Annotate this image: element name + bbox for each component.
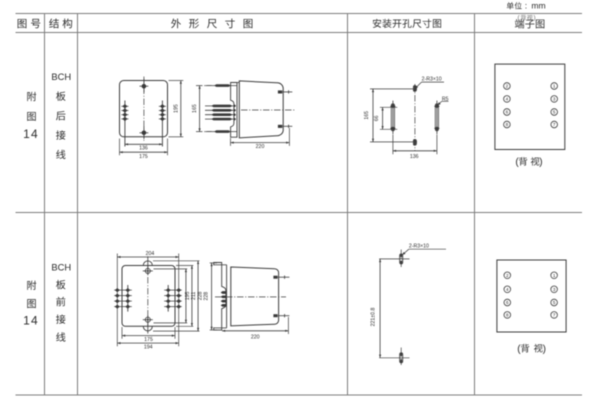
svg-text:): ) [533,14,535,21]
svg-text:5: 5 [553,300,556,305]
svg-text:3: 3 [553,97,556,102]
svg-text:2-R3×10: 2-R3×10 [409,244,429,250]
svg-text:2: 2 [506,84,509,89]
svg-text:66: 66 [374,115,380,121]
svg-text:BCH: BCH [51,261,71,272]
svg-text:136: 136 [410,154,419,160]
svg-text:195: 195 [174,104,180,113]
svg-text:4: 4 [506,287,509,292]
svg-text:mm: mm [531,0,545,10]
svg-text:7: 7 [553,122,556,127]
svg-text:228: 228 [197,291,203,300]
svg-text:228: 228 [204,292,210,301]
svg-text:2-R3×10: 2-R3×10 [422,76,442,82]
svg-text:6: 6 [506,110,509,115]
svg-text:220: 220 [251,335,260,341]
svg-text:1: 1 [553,273,556,278]
svg-text:8: 8 [506,122,509,127]
svg-text:BCH: BCH [51,71,71,82]
svg-text:136: 136 [139,146,148,152]
svg-text:194: 194 [144,345,153,351]
svg-text:): ) [543,344,546,355]
svg-text:3: 3 [553,287,556,292]
svg-text::: : [525,0,527,10]
svg-text:165: 165 [192,104,198,113]
svg-text:175: 175 [139,154,148,160]
svg-text:1: 1 [553,84,556,89]
svg-text:204: 204 [146,251,155,257]
svg-text:): ) [539,157,542,168]
svg-text:221±0.8: 221±0.8 [370,308,376,327]
svg-text:220: 220 [256,144,265,150]
svg-text:14: 14 [23,314,39,328]
svg-text:4: 4 [506,97,509,102]
svg-text:2: 2 [506,273,509,278]
svg-text:211: 211 [191,292,197,300]
svg-text:7: 7 [553,313,556,318]
svg-text:5: 5 [553,110,556,115]
svg-text:175: 175 [144,337,153,343]
svg-text:6: 6 [506,300,509,305]
svg-text:14: 14 [23,127,39,141]
svg-text:195: 195 [185,291,191,300]
svg-text:8: 8 [506,313,509,318]
svg-text:165: 165 [364,111,370,120]
